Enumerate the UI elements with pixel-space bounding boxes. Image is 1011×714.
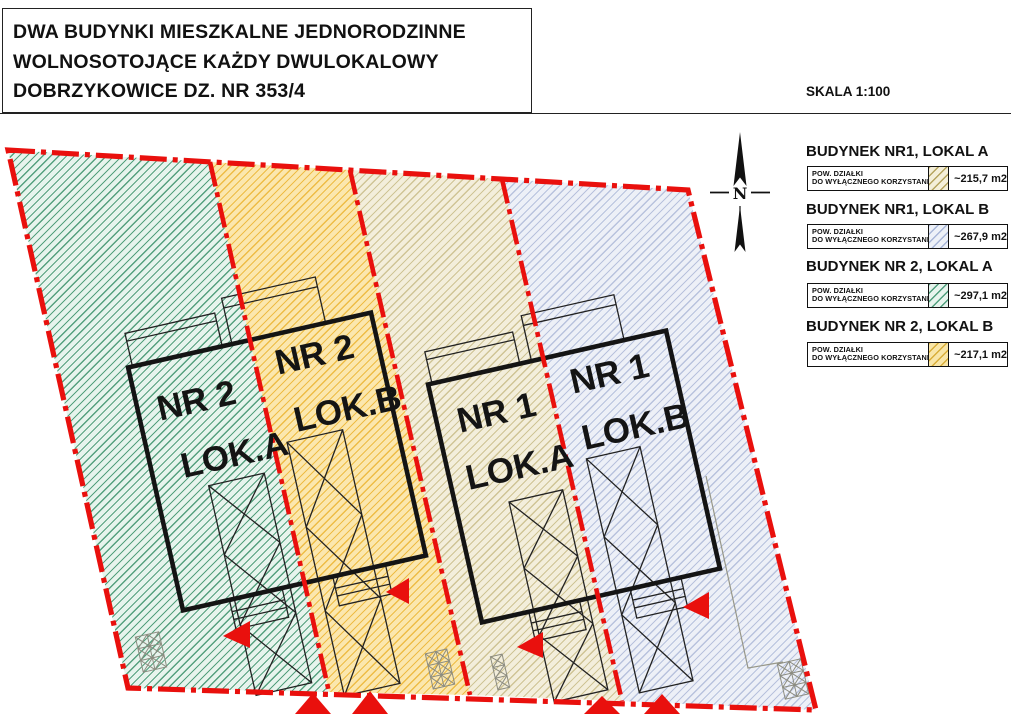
label-nr2-loka-line1: NR 2 [153,373,239,429]
title-block: DWA BUDYNKI MIESZKALNE JEDNORODZINNE WOL… [2,8,532,113]
title-line-2: WOLNOSOTOJĄCE KAŻDY DWULOKALOWY [13,48,531,78]
building-nr1 [418,285,743,714]
legend-heading-nr1-lokal-a: BUDYNEK NR1, LOKAL A [806,143,989,160]
building-nr2-details [122,276,412,714]
legend-area-value: ~217,1 m2 [949,343,1007,366]
legend-area-label: POW. DZIAŁKIDO WYŁĄCZNEGO KORZYSTANIA [808,284,929,307]
legend-swatch-nr1-lokal-a [929,167,949,190]
label-nr1-lokb-line2: LOK.B [578,396,693,458]
title-line-3: DOBRZYKOWICE DZ. NR 353/4 [13,77,531,107]
legend-swatch-nr2-lokal-a [929,284,949,307]
legend-swatch-nr2-lokal-b [929,343,949,366]
walkway-outline [706,476,783,668]
entrance-marker-nr2a [223,621,250,648]
legend-row-nr1-lokal-b: POW. DZIAŁKIDO WYŁĄCZNEGO KORZYSTANIA ~2… [807,224,1008,249]
label-nr2-lokb-line1: NR 2 [271,327,357,383]
legend-area-value: ~297,1 m2 [949,284,1007,307]
parcel-boundary [8,150,816,710]
title-line-1: DWA BUDYNKI MIESZKALNE JEDNORODZINNE [13,18,531,48]
label-nr1-loka-line2: LOK.A [462,436,577,498]
scale-label: SKALA 1:100 [806,84,890,99]
label-nr1-loka-line1: NR 1 [453,385,539,441]
north-label: N [733,184,748,203]
label-nr2-lokb-line2: LOK.B [290,378,405,440]
legend-area-value: ~215,7 m2 [949,167,1007,190]
legend-area-label: POW. DZIAŁKIDO WYŁĄCZNEGO KORZYSTANIA [808,167,929,190]
legend-swatch-nr1-lokal-b [929,225,949,248]
legend-area-label: POW. DZIAŁKIDO WYŁĄCZNEGO KORZYSTANIA [808,343,929,366]
site-plan-sheet: NR 2 LOK.A NR 2 LOK.B NR 1 LOK.A NR 1 LO… [0,0,1011,714]
building-unit-labels: NR 2 LOK.A NR 2 LOK.B NR 1 LOK.A NR 1 LO… [153,327,693,498]
legend-row-nr1-lokal-a: POW. DZIAŁKIDO WYŁĄCZNEGO KORZYSTANIA ~2… [807,166,1008,191]
legend-heading-nr1-lokal-b: BUDYNEK NR1, LOKAL B [806,201,989,218]
legend-heading-nr2-lokal-a: BUDYNEK NR 2, LOKAL A [806,258,993,275]
legend-row-nr2-lokal-b: POW. DZIAŁKIDO WYŁĄCZNEGO KORZYSTANIA ~2… [807,342,1008,367]
label-nr1-lokb-line1: NR 1 [566,346,652,402]
legend-area-label: POW. DZIAŁKIDO WYŁĄCZNEGO KORZYSTANIA [808,225,929,248]
entrance-marker-nr1a [517,632,543,658]
label-nr2-loka-line2: LOK.A [177,424,292,486]
north-arrow-icon: N [710,132,770,252]
parcel-red-lines [8,150,816,710]
legend-row-nr2-lokal-a: POW. DZIAŁKIDO WYŁĄCZNEGO KORZYSTANIA ~2… [807,283,1008,308]
divider-nr2b-nr1a [350,170,470,695]
legend-area-value: ~267,9 m2 [949,225,1007,248]
entrance-marker-nr1b [683,592,709,619]
legend-heading-nr2-lokal-b: BUDYNEK NR 2, LOKAL B [806,318,993,335]
header-rule [0,113,1011,114]
building-nr1-details [422,294,704,714]
